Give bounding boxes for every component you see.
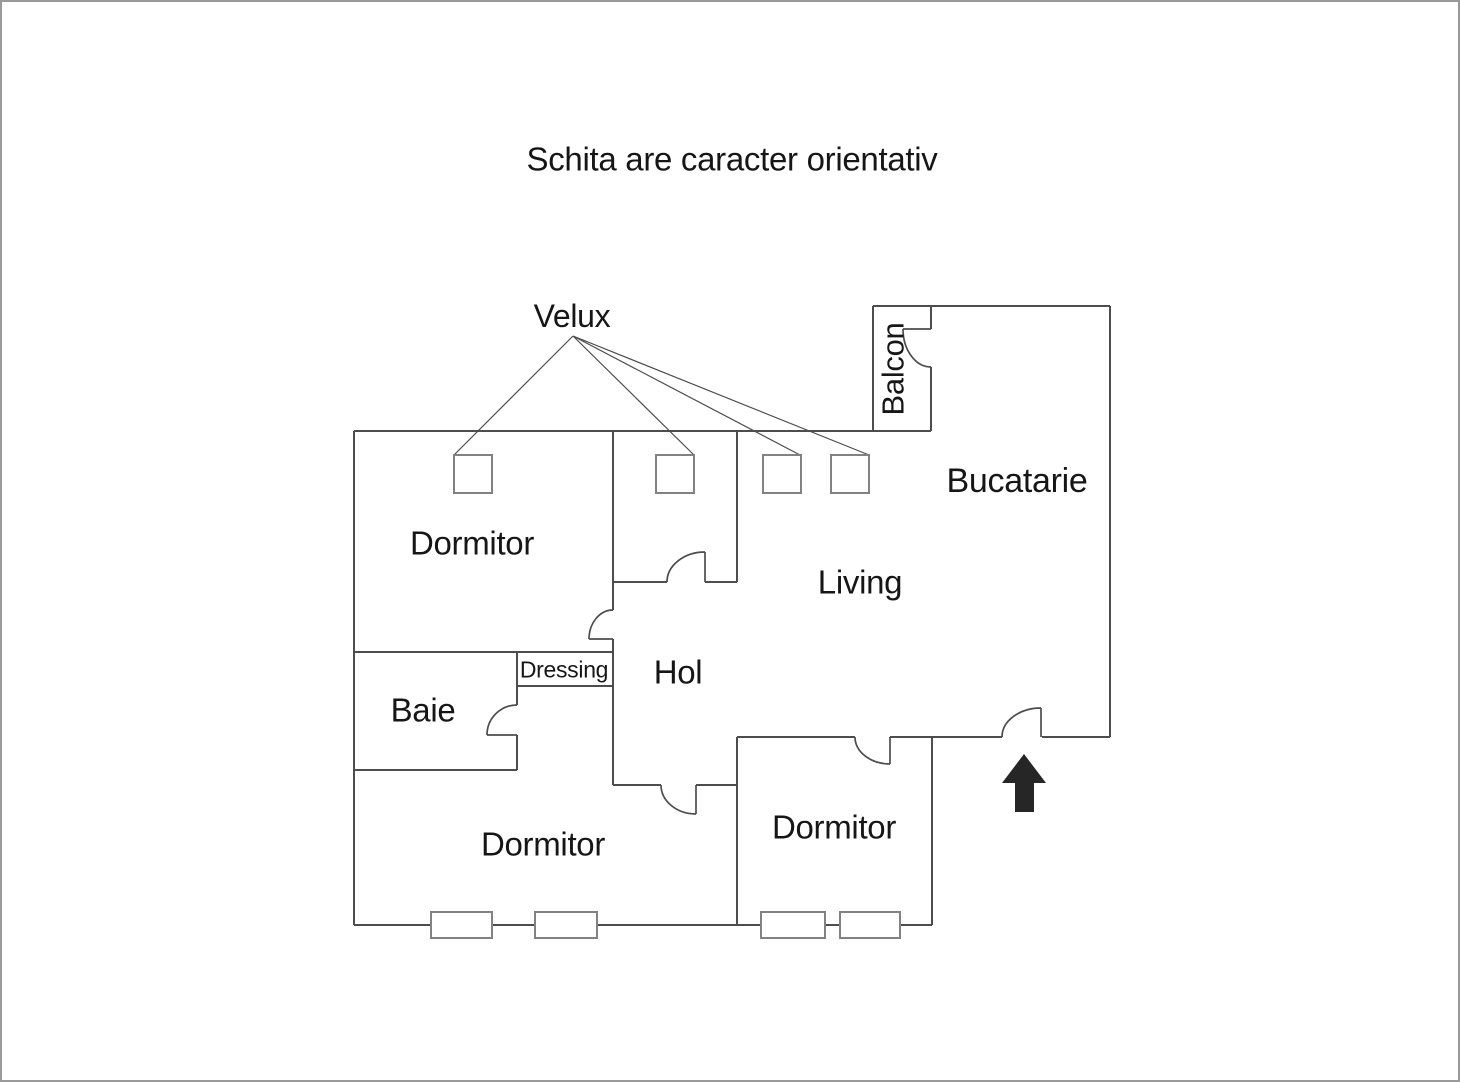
- door-leaves-and-arcs: [487, 329, 1041, 814]
- page-title: Schita are caracter orientativ: [526, 143, 937, 176]
- velux-skylight: [656, 455, 694, 493]
- label-bucatarie: Bucatarie: [947, 464, 1088, 498]
- label-dressing: Dressing: [520, 659, 608, 682]
- velux-skylight: [454, 455, 492, 493]
- label-balcon: Balcon: [878, 323, 909, 416]
- velux-skylight: [763, 455, 801, 493]
- label-baie: Baie: [391, 694, 456, 727]
- wall-lines: [354, 306, 1110, 925]
- velux-callout-lines: [454, 336, 869, 455]
- window: [840, 912, 900, 938]
- label-hol: Hol: [654, 656, 703, 689]
- window: [535, 912, 597, 938]
- velux-skylight: [831, 455, 869, 493]
- velux-skylights: [454, 455, 869, 493]
- label-dormitor-top-left: Dormitor: [410, 527, 534, 560]
- label-dormitor-bottom-right: Dormitor: [772, 811, 896, 844]
- label-dormitor-bottom-left: Dormitor: [481, 828, 605, 861]
- entrance-arrow-icon: [1002, 754, 1046, 812]
- window: [761, 912, 825, 938]
- floor-plan-page: Schita are caracter orientativ Velux Bal…: [0, 0, 1460, 1082]
- label-velux: Velux: [534, 300, 611, 332]
- label-living: Living: [818, 566, 902, 599]
- window: [431, 912, 492, 938]
